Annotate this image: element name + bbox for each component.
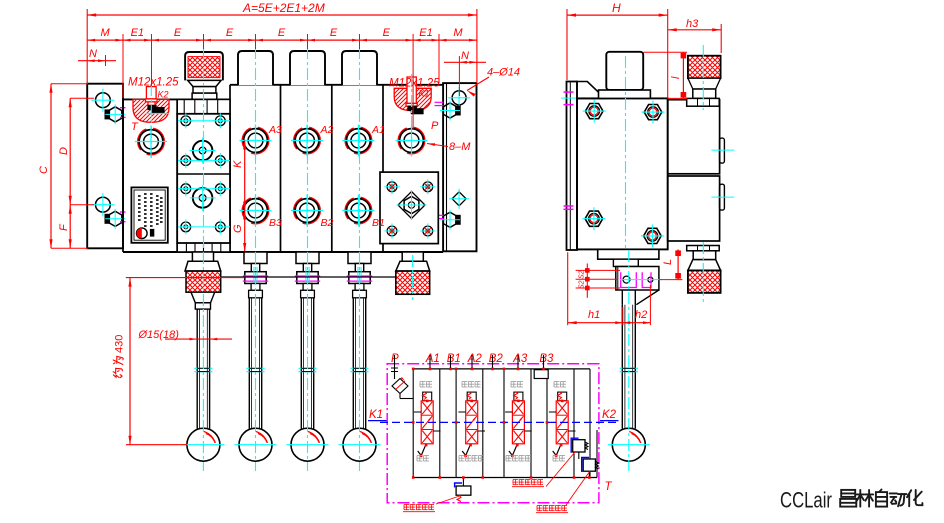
svg-text:B2: B2 (321, 217, 334, 229)
svg-text:A=5E+2E1+2M: A=5E+2E1+2M (242, 1, 325, 15)
svg-text:N: N (89, 48, 97, 60)
svg-text:A2: A2 (320, 124, 334, 136)
svg-text:B3: B3 (269, 217, 282, 229)
svg-text:E: E (174, 27, 182, 39)
svg-text:G: G (232, 224, 244, 233)
svg-text:h2: h2 (635, 309, 647, 321)
svg-text:E: E (383, 27, 391, 39)
svg-text:8–M: 8–M (449, 141, 471, 153)
svg-text:B1: B1 (372, 217, 385, 229)
svg-text:A1: A1 (425, 353, 440, 365)
svg-text:CCLair: CCLair (780, 488, 832, 513)
svg-text:A1: A1 (371, 124, 385, 136)
svg-text:E1: E1 (131, 27, 144, 39)
svg-text:C: C (38, 166, 50, 174)
svg-text:E: E (278, 27, 286, 39)
svg-text:L: L (662, 259, 674, 265)
svg-text:B3: B3 (539, 353, 554, 365)
svg-text:E: E (330, 27, 338, 39)
svg-text:430: 430 (114, 335, 126, 353)
svg-text:A3: A3 (268, 124, 282, 136)
svg-text:H: H (612, 1, 621, 15)
svg-text:D: D (58, 147, 70, 155)
svg-text:K: K (232, 160, 244, 168)
svg-text:S2: S2 (579, 270, 586, 279)
svg-text:B1: B1 (447, 353, 461, 365)
svg-text:M12x1.25: M12x1.25 (389, 78, 440, 90)
svg-text:T: T (605, 481, 613, 493)
svg-text:K1: K1 (419, 89, 430, 99)
svg-text:K1: K1 (369, 409, 383, 421)
svg-text:4–Ø14: 4–Ø14 (487, 67, 520, 79)
svg-text:K2: K2 (602, 409, 617, 421)
svg-text:M: M (453, 27, 463, 39)
svg-text:E: E (226, 27, 234, 39)
svg-text:E1: E1 (419, 27, 432, 39)
svg-text:S2: S2 (579, 280, 586, 289)
svg-text:M12x1.25: M12x1.25 (128, 77, 179, 89)
svg-text:A2: A2 (467, 353, 483, 365)
svg-text:K2: K2 (158, 90, 169, 100)
svg-text:h3: h3 (686, 18, 699, 30)
svg-text:A3: A3 (512, 353, 528, 365)
svg-text:M: M (101, 27, 111, 39)
svg-text:N: N (461, 50, 469, 62)
svg-text:B2: B2 (489, 353, 504, 365)
svg-text:P: P (431, 120, 439, 132)
svg-text:h1: h1 (588, 309, 600, 321)
